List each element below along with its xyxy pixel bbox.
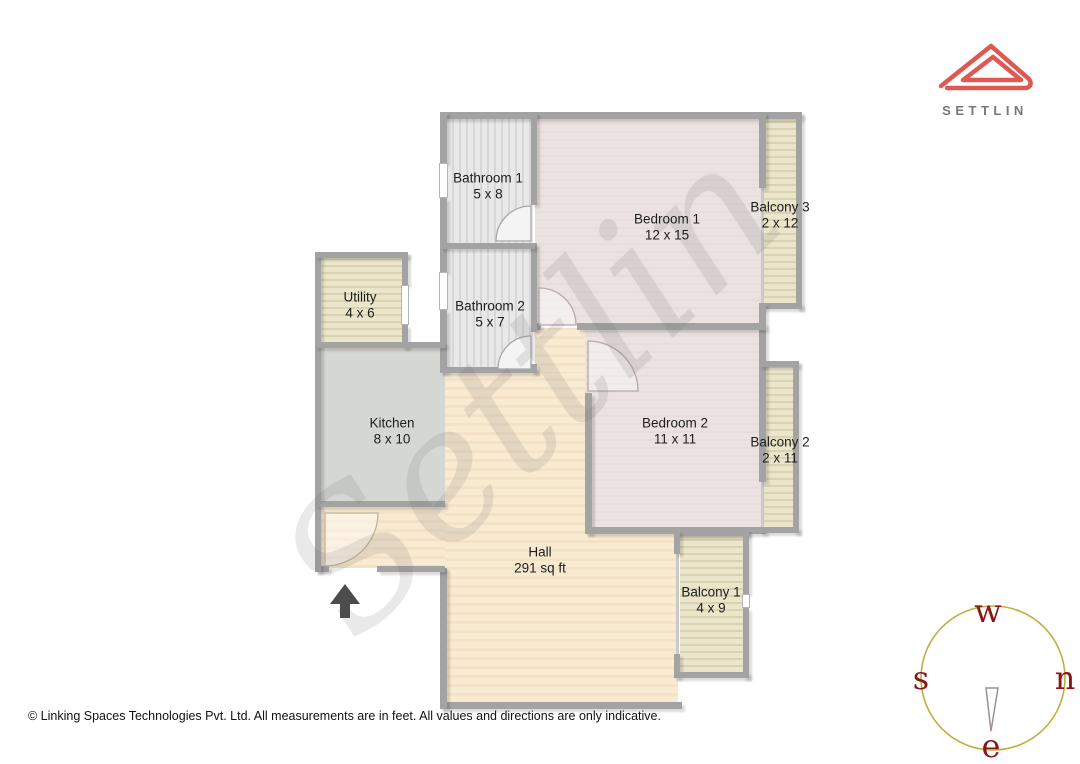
- room-name: Balcony 2: [750, 435, 809, 451]
- room-size: 4 x 9: [681, 600, 740, 616]
- compass: w s n e: [910, 590, 1080, 764]
- roof-icon: [933, 34, 1037, 96]
- compass-west: w: [974, 592, 1001, 630]
- room-size: 5 x 8: [453, 186, 523, 202]
- room-name: Bathroom 1: [453, 171, 523, 187]
- room-label-bathroom1: Bathroom 1 5 x 8: [453, 171, 523, 202]
- room-size: 2 x 12: [750, 215, 809, 231]
- copyright-text: © Linking Spaces Technologies Pvt. Ltd. …: [28, 709, 661, 723]
- compass-south: s: [913, 659, 929, 697]
- room-label-hall: Hall 291 sq ft: [514, 545, 566, 576]
- room-name: Utility: [344, 290, 377, 306]
- arrow-stem: [340, 604, 350, 618]
- room-label-balcony2: Balcony 2 2 x 11: [750, 435, 809, 466]
- room-name: Bathroom 2: [455, 299, 525, 315]
- floorplan-page: Settlin Bathroom 1 5 x 8 Bedroom 1 12 x …: [0, 0, 1080, 764]
- arrow-head: [330, 584, 360, 604]
- room-size: 12 x 15: [634, 227, 700, 243]
- door-arc-bedroom2: [588, 341, 638, 391]
- room-name: Bedroom 1: [634, 212, 700, 228]
- room-name: Bedroom 2: [642, 416, 708, 432]
- room-size: 291 sq ft: [514, 560, 566, 576]
- brand-name: SETTLIN: [930, 103, 1040, 118]
- room-size: 8 x 10: [369, 431, 414, 447]
- room-label-kitchen: Kitchen 8 x 10: [369, 416, 414, 447]
- room-name: Balcony 3: [750, 200, 809, 216]
- room-size: 11 x 11: [642, 431, 708, 447]
- compass-needle: [986, 688, 998, 731]
- room-size: 5 x 7: [455, 314, 525, 330]
- door-arc-bathroom2: [498, 336, 531, 369]
- room-label-bedroom2: Bedroom 2 11 x 11: [642, 416, 708, 447]
- settlin-logo: SETTLIN: [930, 34, 1040, 118]
- room-name: Kitchen: [369, 416, 414, 432]
- room-label-bedroom1: Bedroom 1 12 x 15: [634, 212, 700, 243]
- room-label-balcony1: Balcony 1 4 x 9: [681, 585, 740, 616]
- room-size: 2 x 11: [750, 450, 809, 466]
- door-arc-entry: [325, 513, 378, 566]
- room-label-balcony3: Balcony 3 2 x 12: [750, 200, 809, 231]
- door-arc-bathroom1: [496, 206, 531, 241]
- room-size: 4 x 6: [344, 305, 377, 321]
- door-arc-bedroom1: [539, 288, 576, 325]
- room-label-bathroom2: Bathroom 2 5 x 7: [455, 299, 525, 330]
- compass-east: e: [982, 727, 1001, 764]
- room-name: Balcony 1: [681, 585, 740, 601]
- room-label-utility: Utility 4 x 6: [344, 290, 377, 321]
- entrance-arrow-icon: [330, 584, 360, 618]
- compass-north: n: [1055, 659, 1076, 697]
- room-name: Hall: [514, 545, 566, 561]
